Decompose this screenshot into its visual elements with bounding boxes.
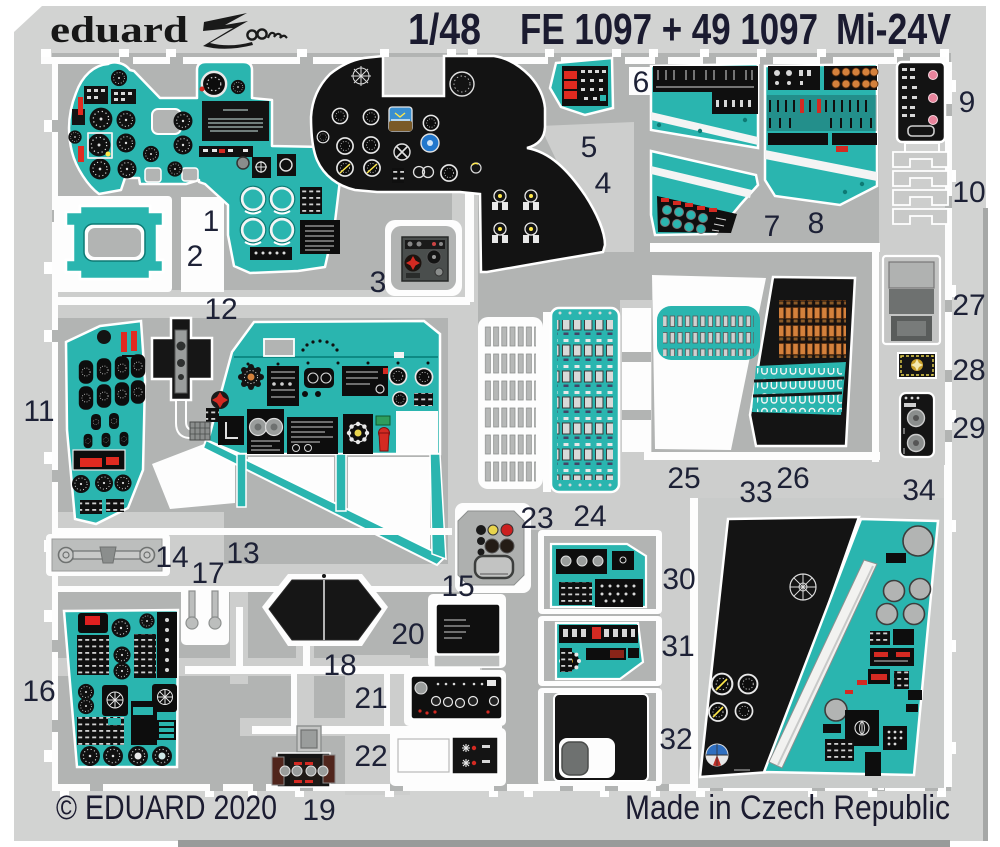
svg-text:2: 2 — [187, 240, 204, 273]
svg-text:30: 30 — [662, 563, 695, 596]
svg-text:1/48: 1/48 — [408, 5, 481, 54]
svg-text:© EDUARD 2020: © EDUARD 2020 — [56, 789, 277, 827]
svg-text:14: 14 — [155, 541, 188, 574]
svg-text:26: 26 — [776, 462, 809, 495]
svg-text:12: 12 — [204, 293, 237, 326]
svg-text:23: 23 — [520, 502, 553, 535]
svg-text:8: 8 — [808, 207, 825, 240]
svg-text:27: 27 — [952, 289, 985, 322]
svg-text:19: 19 — [302, 794, 335, 827]
svg-text:33: 33 — [739, 476, 772, 509]
svg-text:5: 5 — [581, 131, 598, 164]
svg-text:18: 18 — [323, 649, 356, 682]
svg-text:4: 4 — [595, 167, 612, 200]
svg-text:17: 17 — [191, 557, 224, 590]
svg-text:1: 1 — [203, 205, 220, 238]
svg-text:3: 3 — [370, 266, 387, 299]
svg-text:15: 15 — [441, 570, 474, 603]
svg-text:6: 6 — [633, 66, 650, 99]
svg-text:11: 11 — [23, 395, 54, 428]
svg-text:32: 32 — [659, 723, 692, 756]
svg-text:22: 22 — [354, 740, 387, 773]
svg-text:24: 24 — [573, 500, 606, 533]
svg-text:9: 9 — [959, 86, 976, 119]
svg-text:eduard: eduard — [50, 10, 189, 51]
svg-text:13: 13 — [226, 537, 259, 570]
svg-text:7: 7 — [764, 210, 781, 243]
svg-text:21: 21 — [354, 682, 387, 715]
svg-text:34: 34 — [902, 474, 935, 507]
svg-text:20: 20 — [391, 618, 424, 651]
svg-text:25: 25 — [667, 462, 700, 495]
svg-text:Mi-24V: Mi-24V — [836, 5, 952, 54]
svg-text:16: 16 — [22, 675, 55, 708]
svg-text:10: 10 — [952, 176, 985, 209]
svg-text:29: 29 — [952, 412, 985, 445]
svg-text:28: 28 — [952, 354, 985, 387]
svg-text:Made in Czech Republic: Made in Czech Republic — [625, 789, 950, 827]
svg-text:FE 1097 + 49 1097: FE 1097 + 49 1097 — [520, 5, 818, 54]
svg-text:31: 31 — [661, 630, 694, 663]
